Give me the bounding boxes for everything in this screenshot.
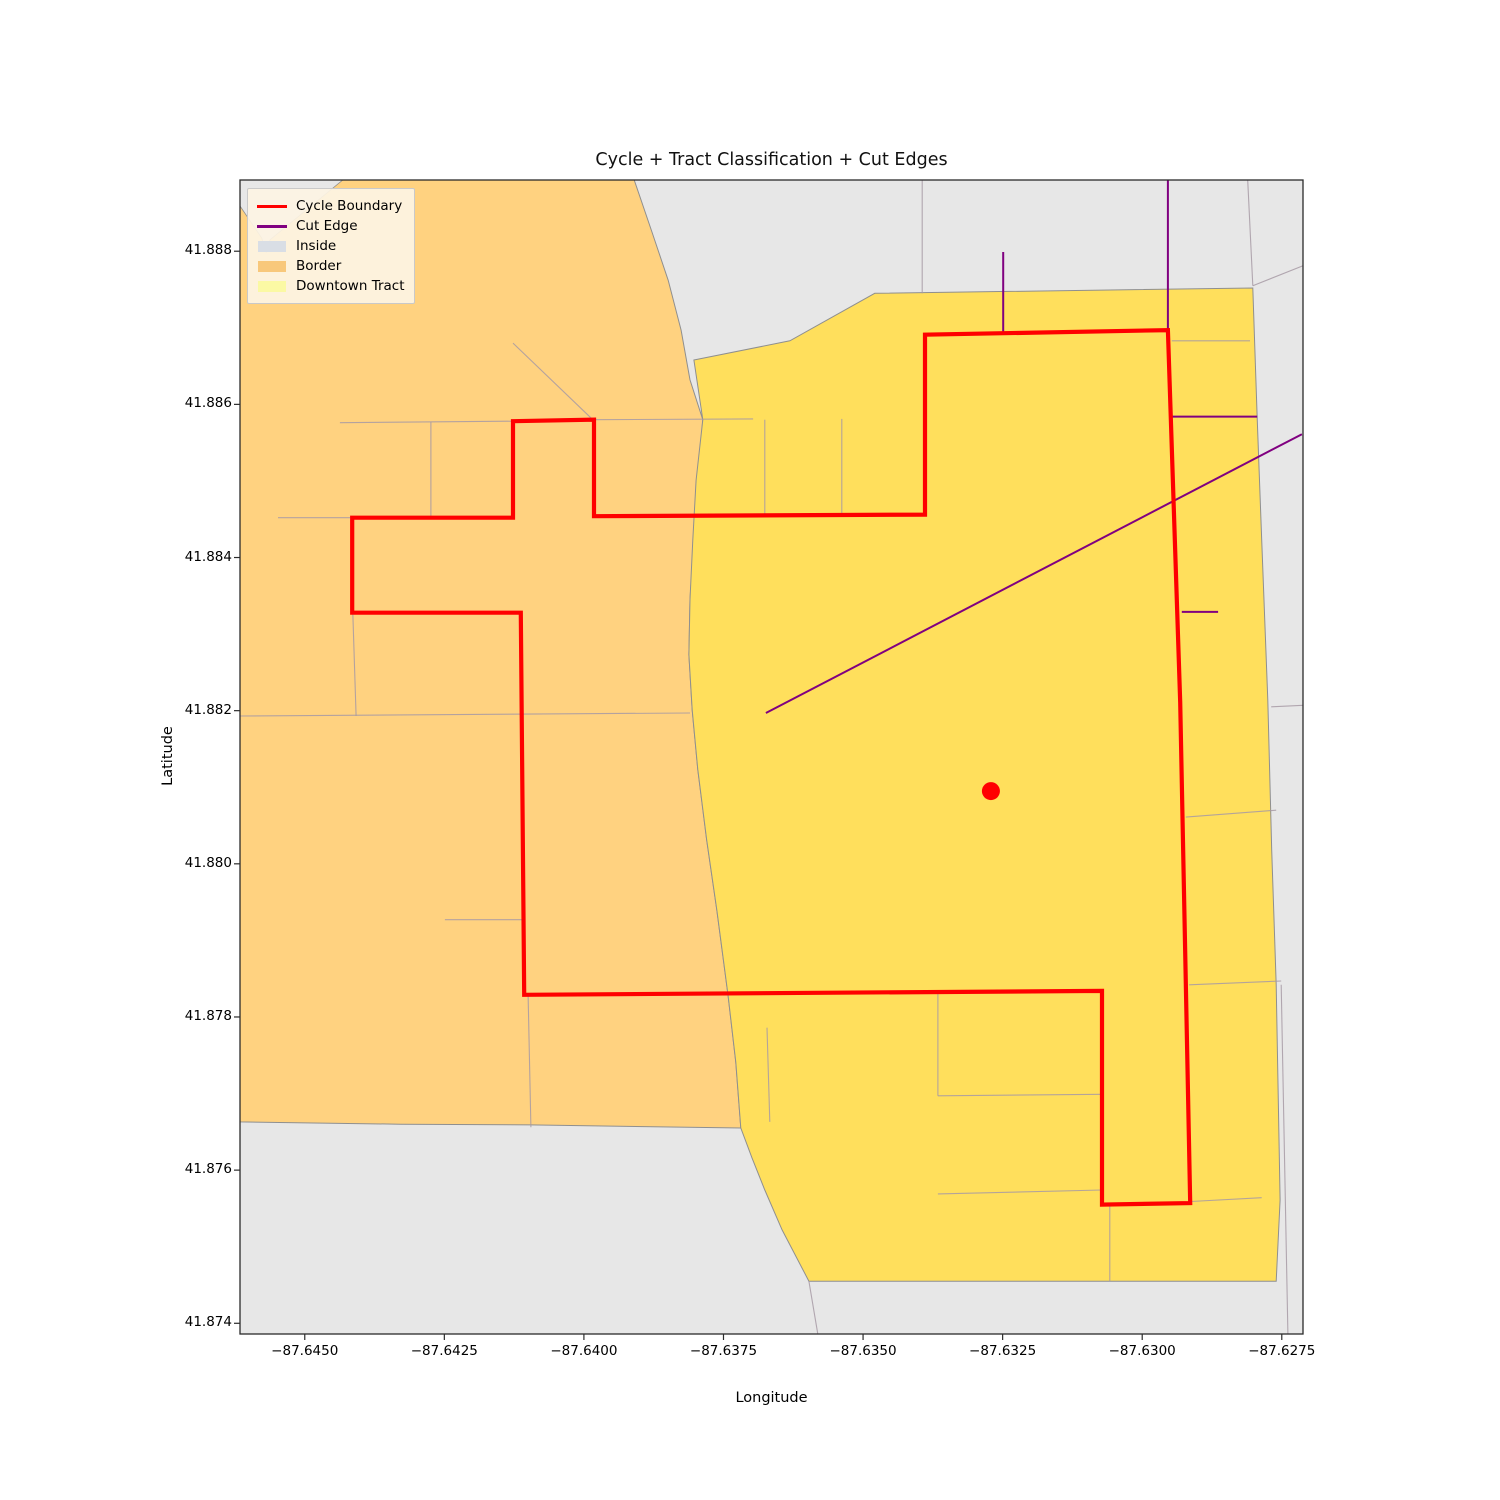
legend-item-border: Border (257, 256, 405, 276)
y-tick-label: 41.884 (122, 549, 232, 565)
x-tick-label: −87.6425 (384, 1343, 504, 1359)
x-tick-label: −87.6300 (1082, 1343, 1202, 1359)
legend: Cycle BoundaryCut EdgeInsideBorderDownto… (247, 188, 415, 304)
border-region (240, 180, 741, 1128)
x-axis-label: Longitude (240, 1390, 1303, 1406)
downtown-tract-region (689, 288, 1280, 1281)
swatch-color (258, 261, 286, 272)
x-tick-label: −87.6275 (1222, 1343, 1342, 1359)
swatch-color (257, 225, 287, 228)
x-tick-label: −87.6375 (663, 1343, 783, 1359)
swatch-color (258, 241, 286, 252)
figure: Cycle + Tract Classification + Cut Edges… (0, 0, 1500, 1500)
legend-patch-swatch (257, 281, 287, 292)
chart-title: Cycle + Tract Classification + Cut Edges (240, 150, 1303, 170)
x-tick-label: −87.6400 (524, 1343, 644, 1359)
y-tick-label: 41.874 (122, 1314, 232, 1330)
y-tick-label: 41.886 (122, 395, 232, 411)
legend-item-label: Border (296, 258, 341, 274)
y-tick-label: 41.878 (122, 1008, 232, 1024)
y-tick-label: 41.888 (122, 242, 232, 258)
y-tick-label: 41.880 (122, 855, 232, 871)
seed-point-marker (982, 782, 1000, 800)
legend-line-swatch (257, 205, 287, 208)
legend-line-swatch (257, 225, 287, 228)
y-tick-label: 41.876 (122, 1161, 232, 1177)
x-tick-label: −87.6350 (803, 1343, 923, 1359)
swatch-color (257, 205, 287, 208)
swatch-color (258, 281, 286, 292)
map-canvas (0, 0, 1500, 1500)
legend-item-label: Inside (296, 238, 336, 254)
legend-patch-swatch (257, 241, 287, 252)
x-tick-label: −87.6325 (943, 1343, 1063, 1359)
legend-item-label: Cut Edge (296, 218, 358, 234)
legend-patch-swatch (257, 261, 287, 272)
legend-item-label: Downtown Tract (296, 278, 405, 294)
legend-item-inside: Inside (257, 236, 405, 256)
legend-item-cut-edge: Cut Edge (257, 216, 405, 236)
legend-item-downtown-tract: Downtown Tract (257, 276, 405, 296)
legend-item-label: Cycle Boundary (296, 198, 402, 214)
x-tick-label: −87.6450 (245, 1343, 365, 1359)
legend-item-cycle-boundary: Cycle Boundary (257, 196, 405, 216)
y-tick-label: 41.882 (122, 702, 232, 718)
